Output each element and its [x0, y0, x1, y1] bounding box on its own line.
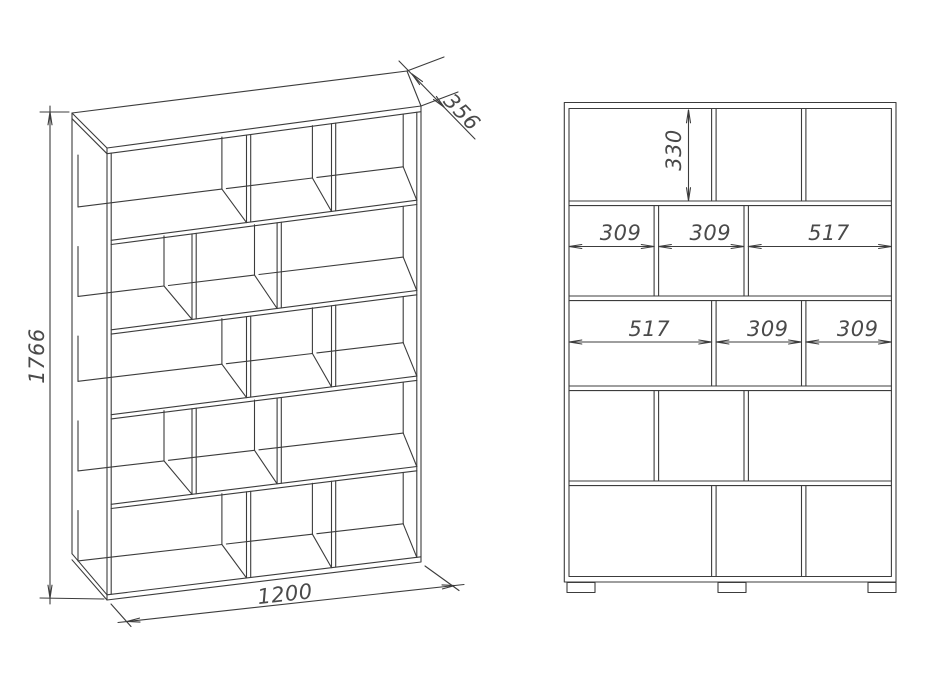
cell-floor-back-edge: [259, 433, 403, 450]
cell-floor-back-edge: [78, 364, 222, 381]
bottom-left-depth-edge: [72, 560, 107, 600]
top-panel-side-edge: [72, 119, 107, 154]
depth-dimension-label: 356: [439, 89, 485, 136]
cabinet-front-outline: [107, 106, 421, 600]
cell-floor-back-edge: [317, 524, 403, 534]
cell-width-dimension-label: 309: [689, 221, 731, 245]
cell-floor-depth-edge: [403, 167, 417, 200]
perspective-view: 17661200356: [25, 57, 485, 627]
shelf-front-edge: [111, 205, 417, 245]
top-panel-front-edge: [107, 112, 421, 154]
cell-height-dimension-label: 330: [662, 129, 686, 171]
cell-floor-back-edge: [317, 343, 403, 353]
shelf-front-edge: [111, 471, 417, 509]
cell-floor-depth-edge: [403, 343, 417, 376]
cell-floor-depth-edge: [403, 433, 417, 466]
shelf-front-edge: [111, 376, 417, 415]
front-leg: [718, 583, 746, 593]
front-leg: [567, 583, 595, 593]
shelf-front-edge: [111, 380, 417, 419]
height-dimension-label: 1766: [25, 328, 49, 383]
cell-floor-depth-edge: [312, 178, 331, 211]
top-face-back-edge: [72, 71, 407, 113]
cell-floor-depth-edge: [312, 534, 331, 567]
cell-floor-back-edge: [78, 189, 222, 207]
cell-floor-back-edge: [78, 286, 164, 296]
cell-floor-depth-edge: [222, 545, 247, 578]
cell-floor-back-edge: [226, 178, 312, 189]
cell-floor-depth-edge: [222, 364, 247, 397]
depth-dim-extension: [407, 57, 444, 71]
cell-floor-back-edge: [226, 534, 312, 544]
bookshelf-dimension-drawing: 17661200356 330309309517517309309: [0, 0, 934, 700]
cell-width-dimension-label: 517: [629, 317, 671, 341]
cell-width-dimension-label: 309: [600, 221, 642, 245]
cell-floor-back-edge: [78, 461, 164, 471]
cell-floor-back-edge: [78, 545, 222, 561]
cell-floor-depth-edge: [164, 461, 192, 494]
cell-floor-depth-edge: [403, 257, 417, 290]
shelf-front-edge: [111, 200, 417, 240]
cell-floor-depth-edge: [222, 189, 247, 223]
cell-floor-depth-edge: [255, 450, 278, 484]
cell-floor-depth-edge: [312, 354, 331, 387]
shelf-front-edge: [111, 291, 417, 330]
shelf-front-edge: [111, 467, 417, 505]
width-dim-extension: [111, 604, 131, 627]
cell-floor-back-edge: [169, 450, 255, 460]
cell-width-dimension-label: 517: [808, 221, 850, 245]
shelf-front-edge: [111, 295, 417, 334]
front-view: 330309309517517309309: [564, 103, 896, 593]
cell-floor-depth-edge: [403, 524, 417, 558]
top-face-left-edge: [72, 113, 107, 148]
cell-floor-back-edge: [317, 167, 403, 178]
width-dim-arrow: [442, 585, 455, 586]
cell-width-dimension-label: 309: [747, 317, 789, 341]
width-dimension-label: 1200: [256, 579, 314, 609]
cell-floor-back-edge: [226, 354, 312, 364]
cell-floor-back-edge: [259, 257, 403, 274]
cell-floor-depth-edge: [255, 275, 278, 308]
width-dim-arrow: [127, 622, 140, 623]
cell-width-dimension-label: 309: [837, 317, 879, 341]
cell-floor-back-edge: [169, 275, 255, 285]
cell-floor-depth-edge: [164, 286, 192, 319]
front-leg: [868, 583, 896, 593]
technical-drawing-canvas: 17661200356 330309309517517309309: [0, 0, 934, 700]
